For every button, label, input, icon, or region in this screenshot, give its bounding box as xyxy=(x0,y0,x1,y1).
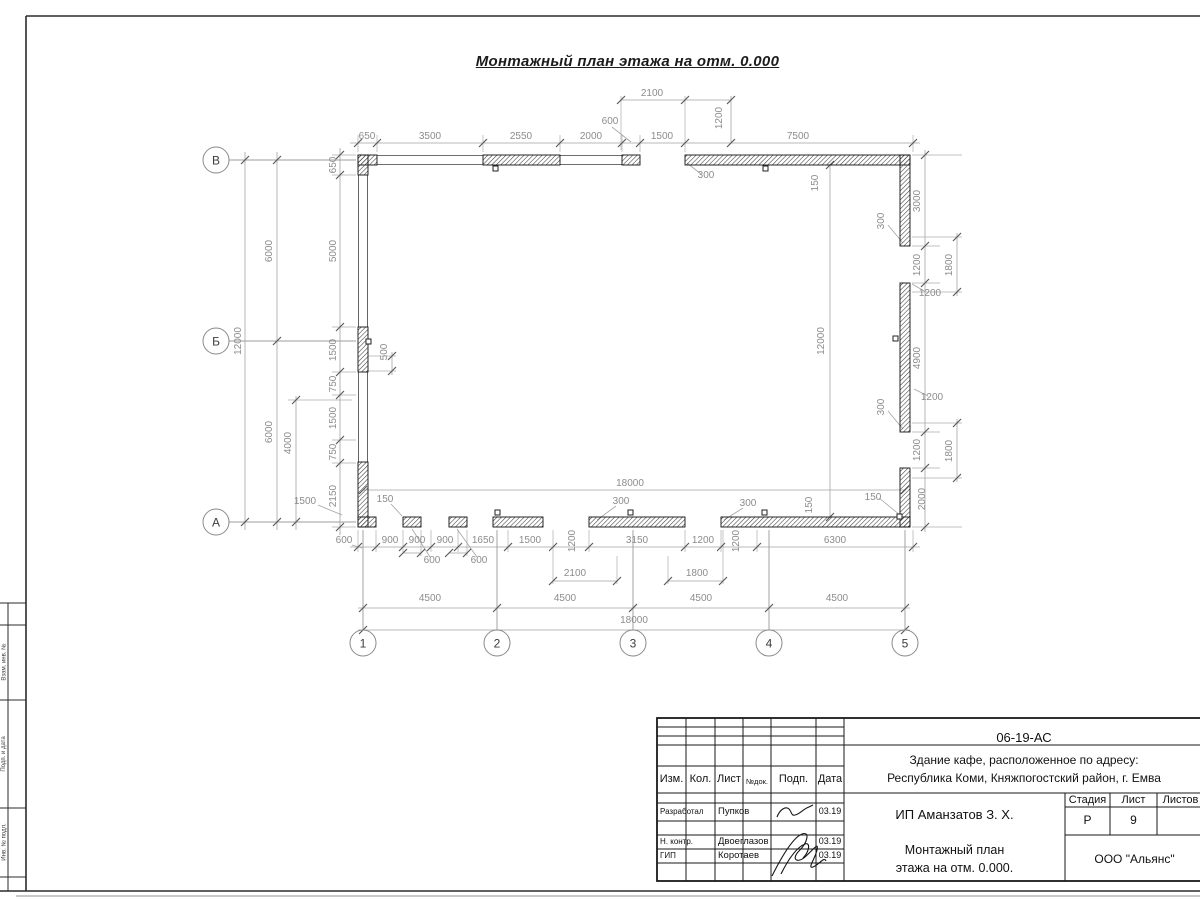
margin-label-vzam: Взам. инв. № xyxy=(1,625,9,700)
stamp-col-data: Дата xyxy=(816,773,844,785)
dimension-label: 300 xyxy=(698,170,715,181)
stamp-doc-number: 06-19-АС xyxy=(844,730,1200,745)
dimension-label: 4500 xyxy=(554,593,577,604)
dimension-lines xyxy=(245,96,957,630)
dimension-label: 600 xyxy=(471,555,488,566)
dimension-label: 900 xyxy=(437,535,454,546)
dimension-label: 1200 xyxy=(912,253,923,276)
dimension-label: 1200 xyxy=(567,529,578,552)
dimension-label: 300 xyxy=(876,398,887,415)
stamp-sheet-label: Лист xyxy=(1110,794,1157,806)
dimension-label: 3150 xyxy=(626,535,649,546)
stamp-sheets-label: Листов xyxy=(1157,794,1200,806)
dimension-label: 300 xyxy=(613,496,630,507)
stamp-col-list: Лист xyxy=(715,773,743,785)
drawing-title: Монтажный план этажа на отм. 0.000 xyxy=(455,53,800,70)
dimension-label: 150 xyxy=(865,492,882,503)
dimension-label: 2000 xyxy=(580,131,603,142)
margin-label-inv: Инв. № подл. xyxy=(1,808,9,877)
dimension-label: 1500 xyxy=(651,131,674,142)
dimension-label: 900 xyxy=(409,535,426,546)
axis-label: 5 xyxy=(902,637,909,651)
stamp-name-developer: Пупков xyxy=(718,806,749,817)
dimension-label: 900 xyxy=(382,535,399,546)
dimension-label: 650 xyxy=(359,131,376,142)
dimension-label: 1500 xyxy=(519,535,542,546)
dimension-label: 4500 xyxy=(690,593,713,604)
stamp-date-gip: 03.19 xyxy=(816,850,844,860)
stamp-sheet-value: 9 xyxy=(1110,813,1157,827)
dimension-label: 150 xyxy=(804,496,815,513)
stamp-object-line2: Республика Коми, Княжпогостский район, г… xyxy=(844,771,1200,785)
dimension-label: 1200 xyxy=(919,288,942,299)
dimension-label: 12000 xyxy=(816,327,827,355)
dimension-label: 2550 xyxy=(510,131,533,142)
dimension-label: 6000 xyxy=(264,420,275,443)
stamp-col-ndok: №док. xyxy=(743,777,771,786)
walls-mounted xyxy=(358,155,910,527)
dimension-label: 1800 xyxy=(686,568,709,579)
dimension-label: 7500 xyxy=(787,131,810,142)
dimension-label: 600 xyxy=(424,555,441,566)
dimension-label: 1500 xyxy=(328,406,339,429)
dimension-label: 1200 xyxy=(692,535,715,546)
dimension-label: 1800 xyxy=(944,439,955,462)
dimension-label: 4500 xyxy=(419,593,442,604)
stamp-date-developer: 03.19 xyxy=(816,806,844,816)
dimension-ticks xyxy=(241,96,961,634)
stamp-date-ncontrol: 03.19 xyxy=(816,836,844,846)
axis-label: 2 xyxy=(494,637,501,651)
dimension-label: 3500 xyxy=(419,131,442,142)
axis-label: Б xyxy=(212,335,220,349)
stamp-stage-label: Стадия xyxy=(1065,794,1110,806)
stamp-sheet-title-line1: Монтажный план xyxy=(844,843,1065,857)
axis-label: 1 xyxy=(360,637,367,651)
dimension-label: 500 xyxy=(379,343,390,360)
stamp-name-ncontrol: Двоеглазов xyxy=(718,836,769,847)
dimension-label: 1200 xyxy=(731,529,742,552)
stamp-col-kol: Кол. xyxy=(686,773,715,785)
axis-lines xyxy=(229,160,905,630)
stamp-sheet-title-line2: этажа на отм. 0.000. xyxy=(844,861,1065,875)
dimension-label: 1200 xyxy=(714,106,725,129)
dimension-label: 5000 xyxy=(328,239,339,262)
dimension-label: 750 xyxy=(328,443,339,460)
extension-lines xyxy=(288,96,962,584)
stamp-name-gip: Коротаев xyxy=(718,850,759,861)
dimension-label: 150 xyxy=(377,494,394,505)
dimension-label: 3000 xyxy=(912,189,923,212)
dimension-label: 300 xyxy=(876,212,887,229)
dimension-label: 1800 xyxy=(944,253,955,276)
dimension-label: 1650 xyxy=(472,535,495,546)
dimension-label: 1200 xyxy=(921,392,944,403)
stamp-col-izm: Изм. xyxy=(657,773,686,785)
dimension-label: 12000 xyxy=(233,327,244,355)
dimension-label: 1200 xyxy=(912,438,923,461)
dimension-label: 600 xyxy=(602,116,619,127)
dimension-label: 2000 xyxy=(917,487,928,510)
dimension-label: 18000 xyxy=(620,615,648,626)
stamp-role-developer: Разработал xyxy=(660,807,704,816)
stamp-role-ncontrol: Н. контр. xyxy=(660,837,693,846)
dimension-label: 6000 xyxy=(264,239,275,262)
stamp-role-gip: ГИП xyxy=(660,851,676,860)
drawing-sheet: ВБА12345 6503500255020006001500750021001… xyxy=(0,0,1200,900)
stamp-col-podp: Подп. xyxy=(771,773,816,785)
dimension-label: 6300 xyxy=(824,535,847,546)
dimension-label: 300 xyxy=(740,498,757,509)
axis-label: 4 xyxy=(766,637,773,651)
stamp-stage-value: Р xyxy=(1065,813,1110,827)
dimension-label: 600 xyxy=(336,535,353,546)
dimension-label: 750 xyxy=(328,375,339,392)
dimension-labels: 6503500255020006001500750021001200300150… xyxy=(233,88,955,626)
stamp-object-line1: Здание кафе, расположенное по адресу: xyxy=(844,753,1200,767)
dimension-label: 150 xyxy=(810,174,821,191)
leader-lines xyxy=(318,127,928,557)
stamp-company: ООО "Альянс" xyxy=(1065,852,1200,866)
axis-label: 3 xyxy=(630,637,637,651)
dimension-label: 1500 xyxy=(294,496,317,507)
margin-label-podp: Подп. и дата xyxy=(0,700,8,808)
dimension-label: 4900 xyxy=(912,346,923,369)
walls-existing xyxy=(359,156,623,463)
stamp-client: ИП Аманзатов З. Х. xyxy=(844,807,1065,822)
dimension-label: 2100 xyxy=(564,568,587,579)
dimension-label: 4500 xyxy=(826,593,849,604)
dimension-label: 18000 xyxy=(616,478,644,489)
dimension-label: 1500 xyxy=(328,338,339,361)
dimension-label: 650 xyxy=(328,156,339,173)
dimension-label: 4000 xyxy=(283,431,294,454)
axis-label: В xyxy=(212,154,220,168)
axis-label: А xyxy=(212,516,220,530)
axis-bubbles: ВБА12345 xyxy=(203,147,918,656)
dimension-label: 2150 xyxy=(328,484,339,507)
dimension-label: 2100 xyxy=(641,88,664,99)
